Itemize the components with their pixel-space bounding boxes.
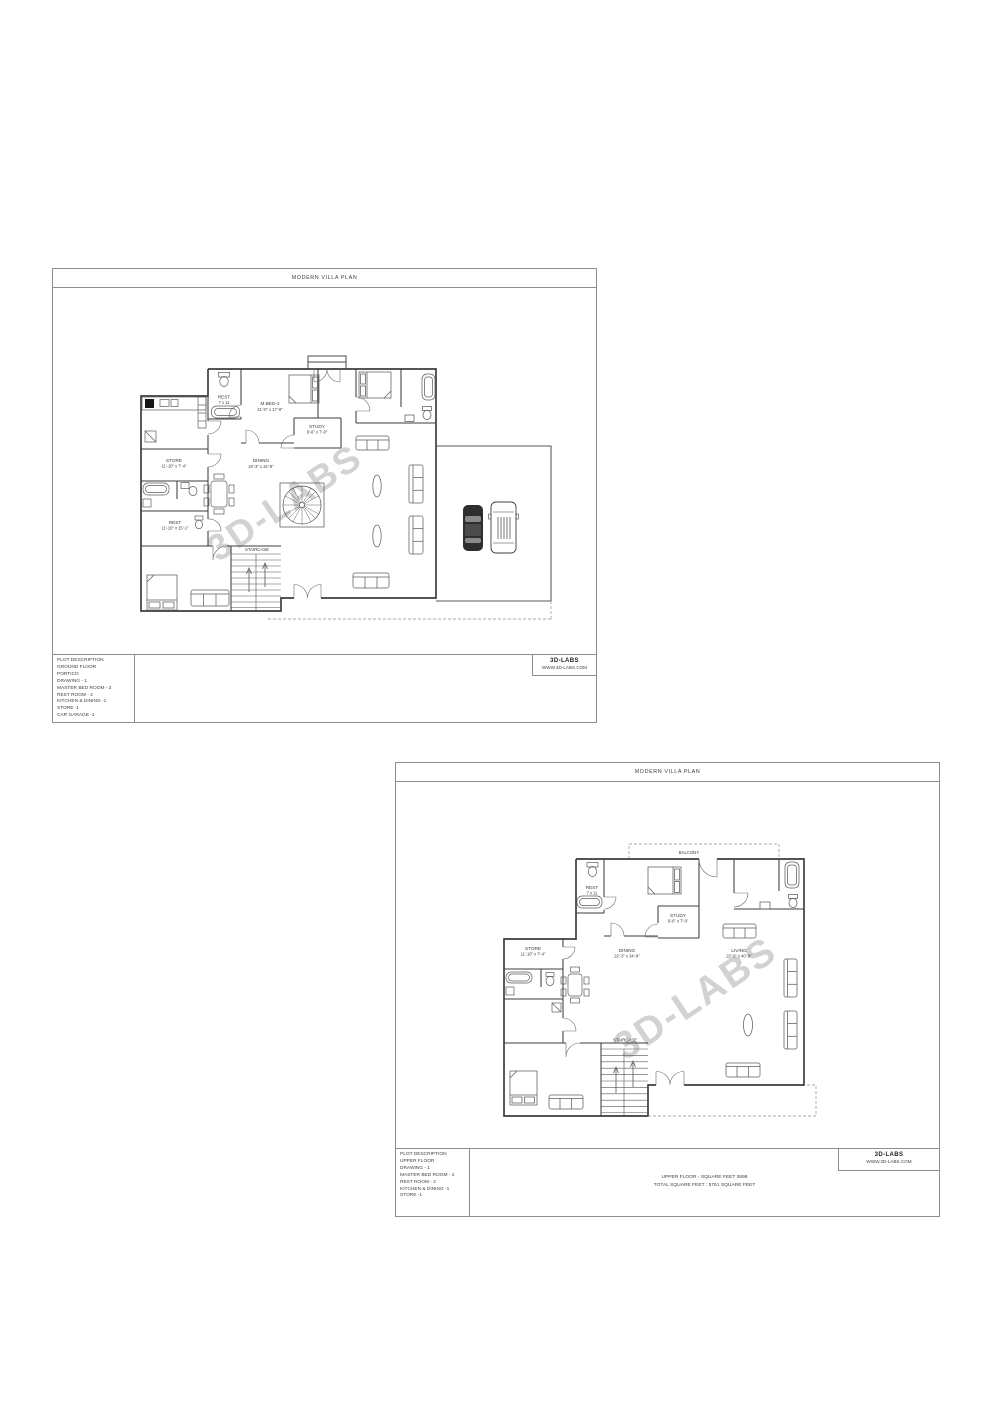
- room-dims-rest-top: 7 x 11: [587, 891, 599, 896]
- room-label-store: STORE: [166, 458, 182, 463]
- plot-line: STORE -1: [400, 1193, 467, 1200]
- room-label-dining: DINING: [619, 948, 636, 953]
- balcony-outline: [629, 844, 779, 859]
- bath-lowerleft-fixtures: [143, 483, 197, 508]
- room-dims-dining: 22'-3" x 34'-9": [614, 954, 640, 959]
- bath-lowerleft-fixtures: [506, 972, 554, 995]
- rest-mid-fixtures: [195, 516, 203, 529]
- logo-name: 3D-LABS: [533, 658, 596, 664]
- plot-line: PLOT DESCRIPTION: [57, 658, 132, 665]
- room-dims-store: 11'-10" x 7'-4": [521, 952, 546, 957]
- plot-line: REST ROOM - 2: [400, 1180, 467, 1187]
- kitchen-counter: [142, 397, 206, 442]
- room-label-rest-top: REST: [586, 885, 599, 890]
- footprint-dashed: [648, 1085, 816, 1116]
- plot-line: PORTICO: [57, 672, 132, 679]
- plot-line: CAR GARAGE -1: [57, 713, 132, 720]
- portico: [308, 356, 346, 369]
- bedroom-bottomleft-furniture: [147, 575, 229, 610]
- plot-line: DRAWING - 1: [400, 1166, 467, 1173]
- bed-master-icon: [648, 867, 681, 894]
- bed-mbed2-icon: [289, 375, 319, 403]
- car-suv-icon: [489, 502, 519, 553]
- title-block: PLOT DESCRIPTION UPPER FLOOR DRAWING - 1…: [396, 1148, 939, 1216]
- outer-walls: [504, 859, 804, 1116]
- logo-name: 3D-LABS: [839, 1152, 939, 1158]
- room-dims-dining: 22'-3" x 34'-9": [248, 464, 274, 469]
- room-label-living: LIVING: [731, 948, 747, 953]
- living-furniture: [353, 436, 423, 588]
- plot-line: DRAWING - 1: [57, 679, 132, 686]
- room-dims-store: 11'-10" x 7'-4": [162, 464, 187, 469]
- title-block: PLOT DESCRIPTION GROUND FLOOR PORTICO DR…: [53, 654, 596, 722]
- room-dims-rest-top: 7 x 11: [219, 400, 231, 405]
- staircase-icon: [231, 554, 281, 611]
- area-line-upper: UPPER FLOOR - SQUARE FEET 3699: [470, 1174, 939, 1182]
- room-label-study: STUDY: [309, 424, 326, 429]
- logo-website: WWW.3D-LABS.COM: [533, 665, 596, 670]
- drawing-sheet-ground-floor: MODERN VILLA PLAN 3D-LABS: [52, 268, 597, 723]
- logo-box: 3D-LABS WWW.3D-LABS.COM: [838, 1149, 939, 1171]
- plot-description-cell: PLOT DESCRIPTION GROUND FLOOR PORTICO DR…: [53, 655, 135, 722]
- watermark-text: 3D-LABS: [200, 436, 370, 569]
- plot-line: MASTER BED ROOM - 2: [57, 686, 132, 693]
- bedroom-bottomleft-furniture: [510, 1071, 583, 1109]
- room-label-balcony: BALCONY: [679, 850, 700, 855]
- room-label-study: STUDY: [670, 913, 687, 918]
- dining-table-icon: [561, 967, 589, 1003]
- room-dims-rest-mid: 11'-10" x 15'-1": [161, 526, 189, 531]
- room-dims-living: 22'-0" x 40'-9": [726, 954, 752, 959]
- area-line-total: TOTAL SQUARE FEET : 5761 SQUARE FEET: [470, 1182, 939, 1190]
- logo-website: WWW.3D-LABS.COM: [839, 1159, 939, 1164]
- room-label-rest-top: REST: [218, 395, 231, 400]
- plot-line: PLOT DESCRIPTION: [400, 1152, 467, 1159]
- plot-line: GROUND FLOOR: [57, 665, 132, 672]
- room-label-dining: DINING: [253, 458, 270, 463]
- room-dims-mbed2: 21'-0" x 17'-9": [257, 407, 283, 412]
- plot-line: UPPER FLOOR: [400, 1159, 467, 1166]
- room-label-staircase: STAIRCASE: [245, 547, 269, 552]
- room-label-mbed2: M.BED-2: [260, 401, 279, 406]
- bedroom-topright-fixtures: [359, 372, 435, 422]
- room-dims-study: 9'-6" x 7'-0": [668, 919, 689, 924]
- page-canvas: MODERN VILLA PLAN 3D-LABS: [0, 0, 1000, 1414]
- plot-line: MASTER BED ROOM - 2: [400, 1173, 467, 1180]
- logo-box: 3D-LABS WWW.3D-LABS.COM: [532, 655, 596, 676]
- drawing-sheet-upper-floor: MODERN VILLA PLAN 3D-LABS BALCONY: [395, 762, 940, 1217]
- car-sedan-icon: [463, 505, 483, 551]
- room-label-rest-mid: REST: [169, 520, 182, 525]
- room-label-store: STORE: [525, 946, 541, 951]
- rest-lowerleft-fixtures: [552, 1003, 561, 1012]
- room-label-staircase: STAIRCASE: [613, 1038, 637, 1043]
- room-dims-study: 9'-6" x 7'-0": [307, 430, 328, 435]
- interior-walls: [504, 859, 804, 1116]
- plot-description-cell: PLOT DESCRIPTION UPPER FLOOR DRAWING - 1…: [396, 1149, 470, 1216]
